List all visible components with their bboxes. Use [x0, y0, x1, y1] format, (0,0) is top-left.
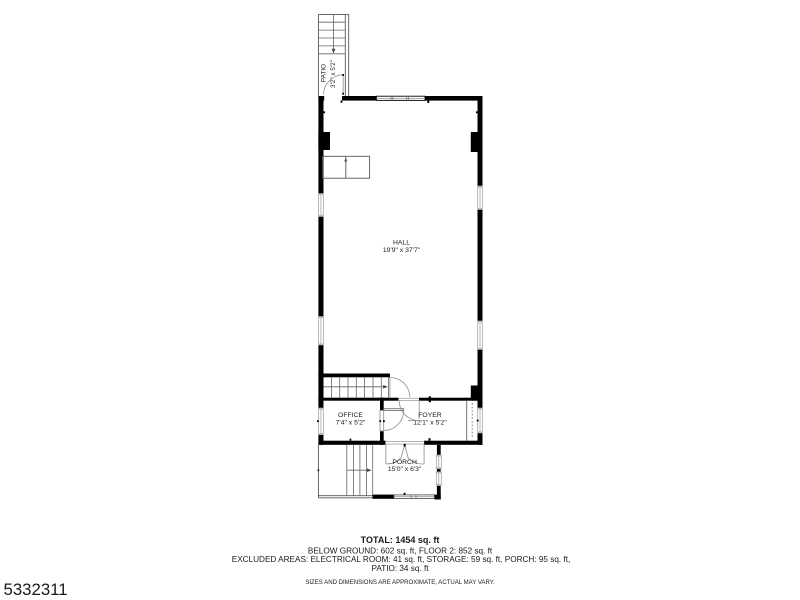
svg-text:TOTAL: 1454 sq. ft: TOTAL: 1454 sq. ft	[361, 535, 440, 545]
svg-text:PATIO: 34 sq. ft: PATIO: 34 sq. ft	[371, 564, 429, 573]
svg-text:OFFICE: OFFICE	[338, 412, 363, 419]
svg-text:PATIO: PATIO	[320, 64, 327, 82]
svg-text:15'0" x 6'3": 15'0" x 6'3"	[388, 466, 422, 473]
svg-text:EXCLUDED AREAS: ELECTRICAL ROO: EXCLUDED AREAS: ELECTRICAL ROOM: 41 sq. …	[232, 555, 571, 564]
svg-text:HALL: HALL	[393, 240, 410, 247]
svg-text:FOYER: FOYER	[418, 412, 442, 419]
svg-text:5332311: 5332311	[4, 580, 68, 599]
svg-text:BELOW GROUND: 602 sq. ft, FLOO: BELOW GROUND: 602 sq. ft, FLOOR 2: 852 s…	[308, 546, 493, 555]
svg-text:3'2" x 5'2": 3'2" x 5'2"	[330, 60, 337, 88]
svg-text:19'9" x 37'7": 19'9" x 37'7"	[383, 247, 421, 254]
svg-text:SIZES AND DIMENSIONS ARE APPRO: SIZES AND DIMENSIONS ARE APPROXIMATE, AC…	[305, 580, 495, 586]
svg-text:7'4" x 5'2": 7'4" x 5'2"	[336, 419, 366, 426]
svg-text:PORCH: PORCH	[392, 459, 417, 466]
